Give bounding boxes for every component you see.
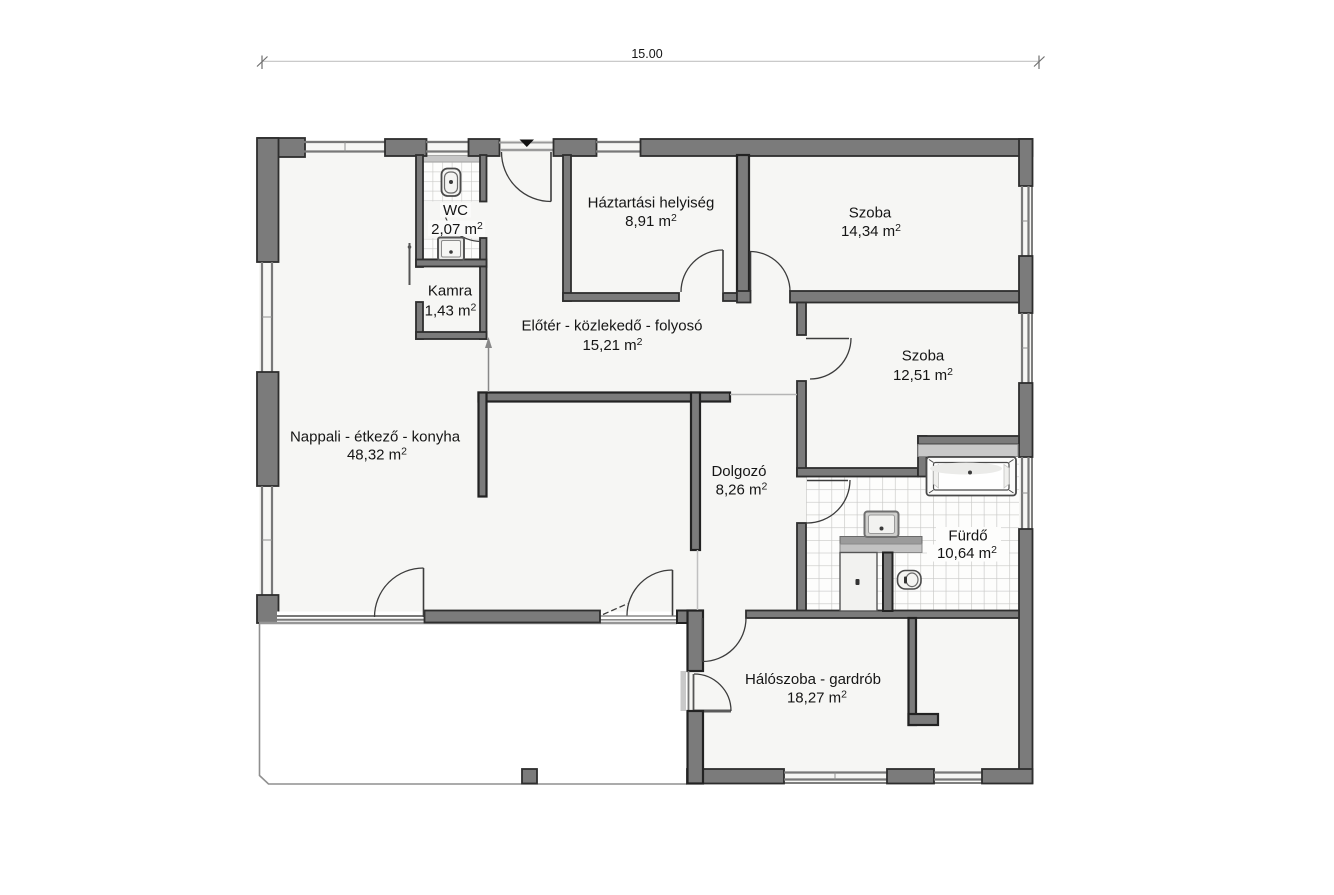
svg-text:15,21 m2: 15,21 m2 [582,336,642,354]
svg-text:Hálószoba - gardrób: Hálószoba - gardrób [745,671,881,688]
svg-text:18,27 m2: 18,27 m2 [787,689,847,707]
svg-text:Kamra: Kamra [428,283,473,300]
svg-text:15.00: 15.00 [631,47,662,61]
svg-text:Szoba: Szoba [902,348,945,365]
svg-text:2,07 m2: 2,07 m2 [431,220,483,238]
svg-text:1,43 m2: 1,43 m2 [425,302,477,320]
svg-text:10,64 m2: 10,64 m2 [937,544,997,562]
svg-text:12,51 m2: 12,51 m2 [893,366,953,384]
svg-text:Nappali - étkező - konyha: Nappali - étkező - konyha [290,429,461,446]
svg-text:8,91 m2: 8,91 m2 [625,212,677,230]
svg-text:Előtér - közlekedő - folyosó: Előtér - közlekedő - folyosó [522,318,703,335]
svg-text:14,34 m2: 14,34 m2 [841,222,901,240]
svg-text:Fürdő: Fürdő [948,528,987,545]
svg-text:48,32 m2: 48,32 m2 [347,446,407,464]
svg-text:Dolgozó: Dolgozó [711,463,766,480]
svg-text:Szoba: Szoba [849,205,892,222]
svg-text:8,26 m2: 8,26 m2 [716,481,768,499]
svg-text:WC: WC [443,202,468,219]
svg-text:Háztartási helyiség: Háztartási helyiség [588,195,715,212]
